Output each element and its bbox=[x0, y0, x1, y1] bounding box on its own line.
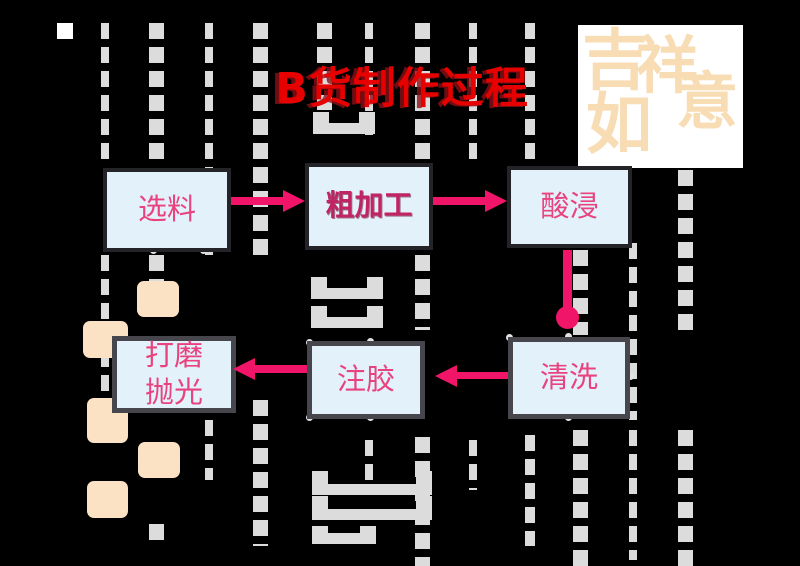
flow-node-select-material: 选料 bbox=[103, 168, 231, 252]
flow-node-glue-injection: 注胶 bbox=[307, 341, 425, 419]
bracket-mark bbox=[312, 471, 432, 495]
flow-node-grind-polish: 打磨 抛光 bbox=[112, 336, 236, 413]
arrow-shaft bbox=[253, 365, 307, 373]
arrow-shaft bbox=[563, 250, 572, 312]
calligraphy-stamp: 吉 祥 如 意 bbox=[578, 25, 743, 168]
bracket-mark bbox=[312, 496, 432, 520]
bg-dash-column bbox=[415, 255, 430, 330]
flow-node-label: 选料 bbox=[138, 192, 196, 228]
stamp-char: 意 bbox=[676, 71, 738, 133]
stamp-char: 如 bbox=[586, 91, 652, 157]
flow-node-label: 打磨 抛光 bbox=[145, 338, 203, 411]
bracket-mark bbox=[311, 306, 383, 328]
arrow-head-left-icon bbox=[233, 358, 255, 380]
flow-node-label: 清洗 bbox=[540, 360, 598, 396]
flow-node-cleaning: 清洗 bbox=[508, 337, 630, 419]
bg-dash-column bbox=[469, 440, 477, 490]
arrow-head-round-icon bbox=[556, 306, 579, 329]
flow-node-label: 酸浸 bbox=[540, 189, 598, 225]
flow-node-label: 粗加工 bbox=[325, 188, 412, 224]
bg-dash-column bbox=[57, 23, 73, 40]
flow-node-rough-processing: 粗加工 bbox=[305, 163, 433, 250]
bg-dash-column bbox=[629, 243, 637, 420]
bracket-mark bbox=[312, 526, 376, 544]
peach-square bbox=[137, 281, 179, 317]
page-title: B货制作过程 bbox=[252, 54, 552, 116]
bracket-mark bbox=[311, 277, 383, 299]
flow-node-label: 注胶 bbox=[337, 362, 395, 398]
bg-dash-column bbox=[678, 170, 693, 335]
arrow-head-right-icon bbox=[283, 190, 305, 212]
bg-dash-column bbox=[678, 430, 693, 566]
peach-square bbox=[87, 481, 128, 518]
arrow-shaft bbox=[231, 197, 285, 205]
peach-square bbox=[138, 442, 180, 478]
bg-dash-column bbox=[149, 23, 164, 160]
arrow-shaft bbox=[453, 372, 508, 379]
flow-node-acid-soak: 酸浸 bbox=[507, 166, 632, 248]
arrow-head-right-icon bbox=[485, 190, 507, 212]
bg-dash-column bbox=[253, 400, 268, 546]
bg-dash-column bbox=[205, 420, 213, 480]
slide-canvas: 吉 祥 如 意 B货制作过程 选料 粗加工 酸浸 清洗 注胶 打磨 抛光 bbox=[0, 0, 800, 566]
bg-dash-column bbox=[149, 524, 164, 546]
arrow-shaft bbox=[433, 197, 485, 205]
bg-dash-column bbox=[573, 430, 588, 566]
bg-dash-column bbox=[525, 435, 535, 546]
bg-dash-column bbox=[629, 430, 637, 560]
bg-dash-column bbox=[101, 23, 109, 160]
